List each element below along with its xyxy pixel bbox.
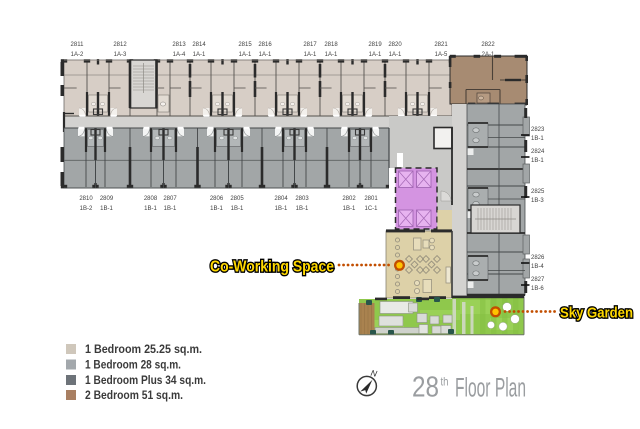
svg-text:1A-1: 1A-1 — [239, 52, 252, 58]
svg-text:2825: 2825 — [531, 189, 545, 195]
svg-text:2817: 2817 — [303, 42, 317, 48]
svg-text:2806: 2806 — [210, 196, 224, 202]
svg-text:1B-1: 1B-1 — [296, 206, 309, 212]
svg-text:1A-1: 1A-1 — [325, 52, 338, 58]
svg-text:2811: 2811 — [71, 42, 85, 48]
svg-text:2823: 2823 — [531, 127, 545, 133]
svg-text:2813: 2813 — [172, 42, 186, 48]
svg-text:2819: 2819 — [368, 42, 382, 48]
svg-text:1B-1: 1B-1 — [100, 206, 113, 212]
svg-text:1A-1: 1A-1 — [259, 52, 272, 58]
svg-text:1 Bedroom Plus 34 sq.m.: 1 Bedroom Plus 34 sq.m. — [85, 373, 206, 387]
svg-text:2809: 2809 — [100, 196, 114, 202]
svg-text:1 Bedroom 28 sq.m.: 1 Bedroom 28 sq.m. — [85, 358, 181, 372]
svg-text:1B-2: 1B-2 — [80, 206, 93, 212]
svg-text:2808: 2808 — [144, 196, 158, 202]
svg-text:th: th — [441, 375, 449, 389]
svg-text:2A-1: 2A-1 — [482, 52, 495, 58]
svg-text:1B-1: 1B-1 — [164, 206, 177, 212]
svg-text:Sky Garden: Sky Garden — [560, 305, 633, 322]
svg-text:2 Bedroom 51 sq.m.: 2 Bedroom 51 sq.m. — [85, 388, 183, 402]
svg-text:Floor Plan: Floor Plan — [455, 373, 526, 403]
svg-text:1B-1: 1B-1 — [144, 206, 157, 212]
svg-text:2810: 2810 — [79, 196, 93, 202]
svg-text:2801: 2801 — [364, 196, 378, 202]
svg-text:2818: 2818 — [324, 42, 338, 48]
svg-text:2815: 2815 — [238, 42, 252, 48]
svg-text:2822: 2822 — [481, 42, 495, 48]
svg-text:1B-1: 1B-1 — [231, 206, 244, 212]
svg-text:1B-1: 1B-1 — [343, 206, 356, 212]
svg-text:2820: 2820 — [388, 42, 402, 48]
svg-text:28: 28 — [412, 372, 439, 404]
svg-text:1B-1: 1B-1 — [531, 158, 544, 164]
svg-text:1 Bedroom 25.25 sq.m.: 1 Bedroom 25.25 sq.m. — [85, 342, 202, 356]
svg-text:1A-1: 1A-1 — [304, 52, 317, 58]
svg-text:2804: 2804 — [274, 196, 288, 202]
svg-text:1A-4: 1A-4 — [173, 52, 186, 58]
svg-text:2814: 2814 — [192, 42, 206, 48]
svg-text:1A-1: 1A-1 — [389, 52, 402, 58]
svg-text:Co-Working Space: Co-Working Space — [210, 259, 334, 276]
svg-text:1A-1: 1A-1 — [193, 52, 206, 58]
svg-text:2807: 2807 — [163, 196, 177, 202]
svg-text:2827: 2827 — [531, 277, 545, 283]
svg-text:1A-3: 1A-3 — [114, 52, 127, 58]
svg-text:2816: 2816 — [258, 42, 272, 48]
svg-text:1A-2: 1A-2 — [71, 52, 84, 58]
svg-text:1A-1: 1A-1 — [369, 52, 382, 58]
svg-text:1B-1: 1B-1 — [531, 136, 544, 142]
svg-text:2826: 2826 — [531, 255, 545, 261]
svg-text:1B-4: 1B-4 — [531, 264, 544, 270]
svg-text:1B-6: 1B-6 — [531, 286, 544, 292]
svg-text:2821: 2821 — [434, 42, 448, 48]
svg-text:2803: 2803 — [295, 196, 309, 202]
svg-text:1B-1: 1B-1 — [275, 206, 288, 212]
svg-text:1B-3: 1B-3 — [531, 198, 544, 204]
svg-text:1C-1: 1C-1 — [364, 206, 378, 212]
svg-text:1A-5: 1A-5 — [435, 52, 448, 58]
svg-text:2812: 2812 — [113, 42, 127, 48]
svg-text:2802: 2802 — [342, 196, 356, 202]
svg-text:1B-1: 1B-1 — [210, 206, 223, 212]
svg-text:2805: 2805 — [230, 196, 244, 202]
svg-text:2824: 2824 — [531, 149, 545, 155]
